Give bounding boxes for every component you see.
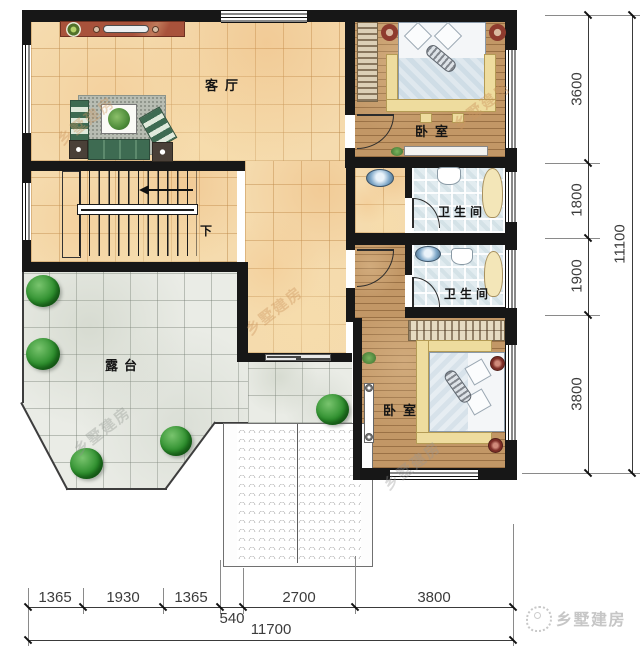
label-bathroom-mid: 卫生间 [444,285,492,302]
terrace-bush-2 [26,338,60,370]
nightstand-left [381,24,398,41]
nightstand-right [489,24,506,41]
bed-top-surround-bottom [386,99,496,112]
dim-bottom-5: 3800 [417,589,450,606]
dim-right-2: 1900 [569,259,586,292]
wall-stair-hall-top [31,161,245,171]
window-right-bathroom-top [505,172,517,222]
bedroom-bottom-plant [362,352,376,364]
terrace-railing-left [22,262,24,403]
stair-flight-lower [79,215,197,256]
wall-hall-lower [346,288,355,322]
radiator-valve-top [365,384,373,392]
terrace-bush-4 [160,426,192,456]
stair-flight-upper [79,171,197,204]
window-right-bedroom-top [505,50,517,148]
sink-mid [415,246,441,262]
dim-bottom-4: 2700 [282,589,315,606]
terrace-bush-5 [316,394,349,425]
wall-bedroom-bottom-left [353,318,362,480]
dim-right-3: 3800 [569,377,586,410]
tv-screen [103,25,149,33]
dim-bottom-3: 540 [219,610,244,627]
radiator-valve-bottom [365,433,373,441]
ext-line-r2 [545,238,600,239]
terrace-bush-1 [26,275,60,307]
bedroom-top-tv-cabinet [404,146,488,156]
dim-right-1: 1800 [569,183,586,216]
logo-icon-eye [534,612,541,619]
logo-icon [526,606,552,632]
side-table-left [69,140,88,159]
label-bathroom-top: 卫生间 [438,203,486,220]
stool-red-bottom [488,438,503,453]
window-right-bedroom-bottom [505,345,517,440]
sofa-bottom [88,139,150,160]
porch-roof-tiles [237,424,361,563]
floor-plan-canvas: 下 [0,0,640,646]
wall-entry-bath-divider [405,245,412,275]
bedroom-top-plant [391,147,403,156]
wall-living-bedroom [345,22,355,115]
coffee-table-plant [108,108,130,130]
dim-right-0: 3600 [569,72,586,105]
wall-bath-divider [346,233,517,245]
sofa-left [70,100,89,142]
label-bedroom-top: 卧室 [415,121,455,140]
alcove-sink [366,169,394,187]
wall-terrace-top [22,262,248,272]
stair-direction-line [148,189,193,191]
logo-text: 乡墅建房 [556,606,626,630]
ext-line-r1 [545,163,600,164]
wardrobe-bottom-bedroom [408,320,505,341]
dim-chain-right [588,15,589,473]
hallway-floor [245,161,346,353]
wall-bedroom-top-bottom [345,157,505,168]
stair-handrail-centerline [81,209,194,211]
label-living-room: 客厅 [205,75,245,94]
dim-total-bottom [28,640,514,641]
window-right-bathroom-mid [505,250,517,308]
window-top-living [221,10,307,23]
label-terrace: 露台 [105,355,143,374]
ext-line-b6 [513,524,514,646]
ext-line-r0 [545,15,640,16]
wall-alcove-bath-divider [405,168,412,198]
bed-bottom-surround-bottom [416,432,492,444]
terrace-bush-3 [70,448,103,479]
sliding-door-leaf2 [296,358,330,360]
wardrobe-top-bedroom [357,22,378,102]
stair-down-label: 下 [200,222,212,239]
dim-right-total: 11100 [612,224,629,264]
porch-roof-ridge [297,424,298,563]
decor-plate [66,22,81,37]
window-left-living [22,45,31,133]
dim-bottom-2: 1365 [174,589,207,606]
terrace-floor [22,272,248,490]
stair-direction-arrowhead [139,185,149,195]
window-bedroom-bottom [390,469,478,480]
ext-line-b0 [28,588,29,646]
toilet-mid [451,248,473,265]
window-left-stairhall [22,183,31,240]
wall-bath-mid-bottom [405,307,517,318]
dim-bottom-total: 11700 [251,621,292,638]
dim-bottom-0: 1365 [38,589,71,606]
side-table-right [152,142,173,162]
toilet-top [437,167,461,185]
terrace-railing-bottom [66,488,167,490]
ext-line-r4 [522,473,640,474]
label-bedroom-bottom: 卧室 [383,400,423,419]
tv-speaker-right [152,26,159,33]
wall-terrace-right [237,262,248,362]
tv-speaker-left [93,26,100,33]
dim-bottom-1: 1930 [106,589,139,606]
ext-line-r3 [545,315,600,316]
dim-chain-bottom [28,607,514,608]
stool-red-top [490,356,505,371]
bed-bottom-surround-left [416,340,429,444]
dim-total-right [632,15,633,473]
